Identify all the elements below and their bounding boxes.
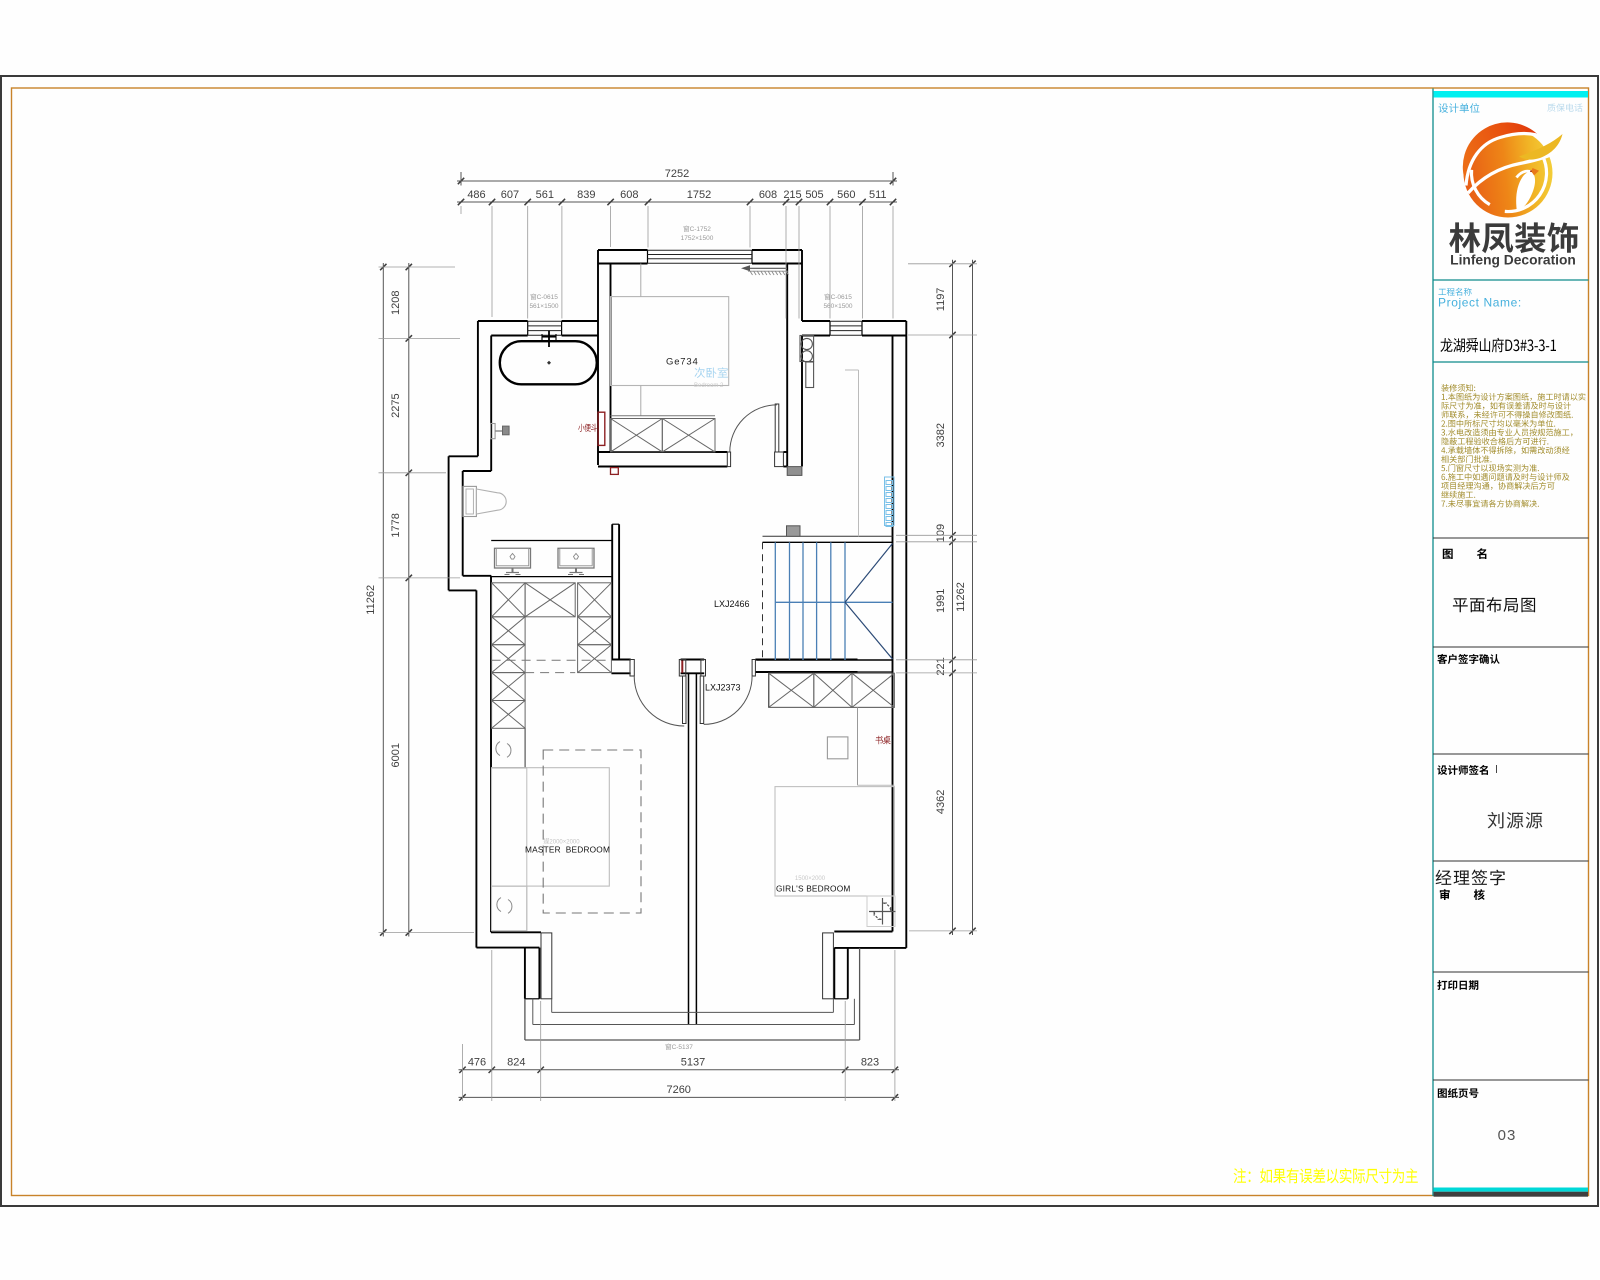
svg-text:608: 608 (620, 189, 638, 201)
svg-text:608: 608 (759, 189, 777, 201)
svg-text:109: 109 (935, 524, 947, 542)
svg-text:1752×1500: 1752×1500 (681, 235, 714, 242)
svg-text:486: 486 (467, 189, 485, 201)
svg-text:窗C-5137: 窗C-5137 (665, 1042, 693, 1051)
svg-text:LXJ2373: LXJ2373 (705, 683, 741, 693)
svg-text:505: 505 (805, 189, 823, 201)
svg-text:1991: 1991 (935, 589, 947, 613)
svg-text:2275: 2275 (390, 393, 402, 417)
svg-text:4362: 4362 (935, 790, 947, 814)
svg-text:GIRL'S BEDROOM: GIRL'S BEDROOM (776, 884, 850, 894)
svg-text:561×1500: 561×1500 (529, 303, 558, 310)
svg-text:823: 823 (861, 1057, 879, 1069)
svg-text:215: 215 (783, 189, 801, 201)
svg-text:Linfeng Decoration: Linfeng Decoration (1450, 253, 1576, 268)
svg-text:03: 03 (1498, 1127, 1517, 1144)
svg-text:窗C-1752: 窗C-1752 (683, 224, 711, 233)
svg-text:1500×2000: 1500×2000 (795, 876, 826, 882)
svg-text:560×1500: 560×1500 (823, 303, 852, 310)
svg-text:LXJ2466: LXJ2466 (714, 599, 750, 609)
svg-text:11262: 11262 (365, 585, 377, 615)
svg-text:7252: 7252 (665, 168, 689, 180)
svg-text:476: 476 (468, 1057, 486, 1069)
svg-text:1208: 1208 (390, 290, 402, 314)
svg-text:MASTER BEDROOM: MASTER BEDROOM (525, 845, 610, 855)
svg-text:窗C-0615: 窗C-0615 (824, 292, 852, 301)
svg-text:824: 824 (507, 1057, 525, 1069)
svg-text:Project Name:: Project Name: (1438, 296, 1522, 310)
svg-text:7260: 7260 (666, 1084, 690, 1096)
svg-text:3382: 3382 (935, 423, 947, 447)
svg-text:窗C-0615: 窗C-0615 (530, 292, 558, 301)
svg-text:6001: 6001 (390, 743, 402, 767)
svg-text:Ge734: Ge734 (666, 357, 699, 368)
svg-text:607: 607 (501, 189, 519, 201)
svg-text:511: 511 (869, 189, 887, 201)
svg-text:1778: 1778 (390, 513, 402, 537)
svg-text:5137: 5137 (681, 1057, 705, 1069)
svg-text:11262: 11262 (955, 582, 967, 612)
svg-text:Bedroom 2: Bedroom 2 (694, 383, 724, 389)
svg-text:560: 560 (837, 189, 855, 201)
svg-text:1752: 1752 (687, 189, 711, 201)
svg-text:839: 839 (577, 189, 595, 201)
svg-text:561: 561 (536, 189, 554, 201)
svg-text:1197: 1197 (935, 288, 947, 312)
